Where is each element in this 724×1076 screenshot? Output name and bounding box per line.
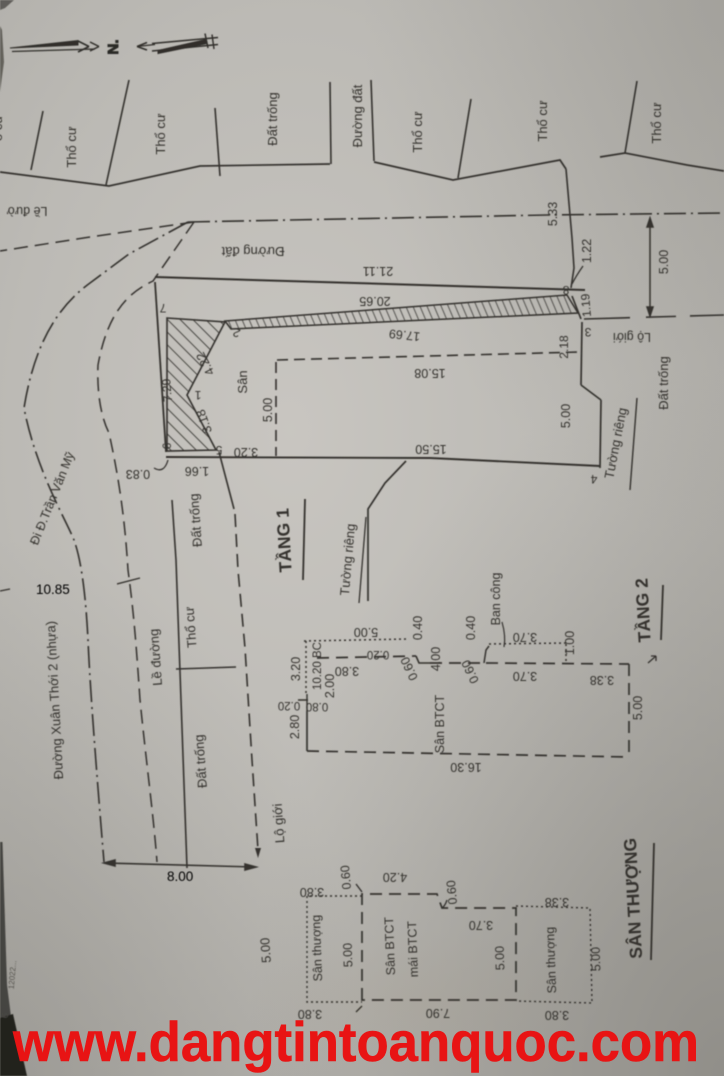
svg-text:5.00: 5.00 — [657, 250, 671, 274]
svg-text:Lề đườ: Lề đườ — [7, 204, 48, 218]
svg-text:Ban công: Ban công — [489, 573, 503, 626]
svg-text:N.: N. — [105, 40, 122, 55]
svg-text:Thổ cư: Thổ cư — [410, 111, 425, 153]
svg-text:1.22: 1.22 — [580, 239, 594, 263]
svg-text:Sân thượng: Sân thượng — [543, 927, 559, 994]
svg-text:1.19: 1.19 — [578, 293, 594, 318]
svg-text:5.00: 5.00 — [261, 398, 275, 422]
svg-text:21.11: 21.11 — [363, 264, 393, 278]
svg-text:5.00: 5.00 — [341, 943, 356, 968]
svg-text:Sân: Sân — [235, 370, 250, 393]
svg-text:3.38: 3.38 — [590, 673, 614, 687]
svg-text:20.65: 20.65 — [359, 294, 390, 308]
svg-text:mái BTCT: mái BTCT — [405, 920, 421, 977]
svg-text:ổ cư: ổ cư — [0, 115, 5, 141]
svg-text:3.70: 3.70 — [513, 630, 537, 644]
svg-text:3.20: 3.20 — [289, 657, 303, 681]
svg-text:3.70: 3.70 — [469, 918, 493, 932]
svg-text:Đất trống: Đất trống — [265, 92, 280, 145]
svg-text:1: 1 — [194, 388, 201, 402]
svg-text:1.00: 1.00 — [563, 631, 577, 655]
svg-text:5.00: 5.00 — [559, 404, 573, 428]
svg-text:www.dangtintoanquoc.com: www.dangtintoanquoc.com — [12, 1010, 699, 1073]
svg-text:5.00: 5.00 — [493, 946, 508, 971]
svg-text:4.00: 4.00 — [429, 647, 443, 671]
svg-text:5.00: 5.00 — [589, 947, 604, 972]
svg-text:0.80: 0.80 — [306, 700, 328, 712]
svg-text:3.38: 3.38 — [545, 895, 569, 909]
svg-text:10.85: 10.85 — [36, 582, 70, 597]
svg-text:Thổ cư: Thổ cư — [64, 126, 79, 168]
svg-text:Đất trống: Đất trống — [656, 356, 671, 409]
svg-text:Sân thượng: Sân thượng — [309, 915, 325, 982]
svg-text:2.80: 2.80 — [288, 715, 302, 739]
svg-text:4: 4 — [590, 472, 597, 486]
svg-text:3.80: 3.80 — [300, 885, 324, 899]
svg-text:5: 5 — [215, 443, 222, 457]
svg-text:TẦNG 1: TẦNG 1 — [271, 507, 295, 572]
svg-text:5.00: 5.00 — [631, 696, 645, 720]
svg-text:3.20: 3.20 — [234, 445, 258, 459]
svg-text:Sân BTCT: Sân BTCT — [433, 694, 447, 753]
svg-text:16.30: 16.30 — [450, 760, 481, 774]
svg-text:4.20: 4.20 — [383, 870, 407, 884]
svg-text:Thổ cư: Thổ cư — [649, 102, 664, 144]
svg-text:0.40: 0.40 — [411, 616, 425, 640]
svg-text:3.80: 3.80 — [335, 664, 359, 678]
svg-text:3.70: 3.70 — [513, 669, 537, 683]
svg-text:Thổ cư: Thổ cư — [153, 113, 168, 155]
svg-text:0.83: 0.83 — [126, 467, 150, 481]
svg-text:0.20: 0.20 — [278, 699, 300, 711]
svg-text:7: 7 — [159, 301, 166, 315]
svg-text:0.60: 0.60 — [444, 880, 460, 906]
svg-text:Đường đất: Đường đất — [221, 244, 284, 259]
svg-text:Lộ giới: Lộ giới — [613, 330, 651, 344]
svg-text:3: 3 — [584, 325, 591, 339]
svg-text:8: 8 — [562, 283, 569, 297]
svg-text:Đường đất: Đường đất — [350, 84, 365, 147]
svg-text:Thổ cư: Thổ cư — [182, 606, 200, 648]
svg-text:0.20: 0.20 — [367, 648, 389, 660]
svg-text:1.66: 1.66 — [185, 464, 209, 478]
svg-text:15.08: 15.08 — [414, 366, 445, 380]
svg-text:TẦNG 2: TẦNG 2 — [630, 577, 654, 642]
svg-text:Lộ giới: Lộ giới — [270, 803, 288, 844]
svg-text:5.00: 5.00 — [257, 937, 274, 963]
svg-text:6: 6 — [160, 442, 174, 449]
svg-text:7.29: 7.29 — [159, 378, 175, 403]
svg-text:Sân BTCT: Sân BTCT — [382, 916, 398, 975]
svg-text:15.50: 15.50 — [415, 442, 446, 456]
svg-text:5.00: 5.00 — [354, 625, 378, 639]
svg-text:5.33: 5.33 — [546, 202, 560, 226]
svg-text:0.40: 0.40 — [464, 616, 478, 640]
svg-text:8.00: 8.00 — [167, 869, 193, 884]
svg-text:6: 6 — [0, 1013, 10, 1019]
svg-text:2.18: 2.18 — [557, 335, 571, 359]
svg-text:0.60: 0.60 — [338, 865, 354, 891]
svg-text:Thổ cư: Thổ cư — [535, 100, 550, 142]
